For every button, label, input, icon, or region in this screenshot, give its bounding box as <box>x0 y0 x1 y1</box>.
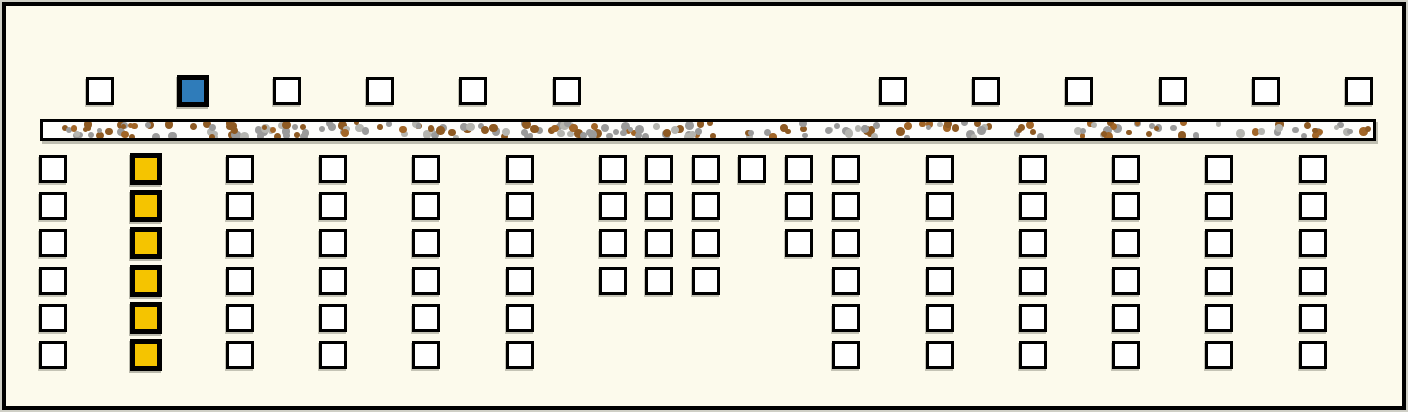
selected-yellow-square[interactable] <box>130 190 162 222</box>
gravel-dot <box>524 133 530 139</box>
gravel-dot <box>802 133 808 139</box>
gravel-dot <box>748 130 754 136</box>
grid-square[interactable] <box>692 267 720 295</box>
gravel-dot <box>977 126 986 135</box>
gravel-dot <box>1292 127 1298 133</box>
grid-square[interactable] <box>1205 192 1233 220</box>
gravel-dot <box>1180 119 1187 126</box>
selected-yellow-square[interactable] <box>130 339 162 371</box>
gravel-dot <box>1146 131 1152 137</box>
gravel-dot <box>620 130 626 136</box>
gravel-dot <box>580 132 587 139</box>
gravel-dot <box>1301 133 1307 139</box>
grid-square[interactable] <box>1299 304 1327 332</box>
grid-square[interactable] <box>1299 155 1327 183</box>
gravel-dot <box>1334 125 1339 130</box>
gravel-dot <box>1347 129 1352 134</box>
gravel-dot <box>292 124 298 130</box>
gravel-dot <box>466 123 475 132</box>
gravel-dot <box>919 121 926 128</box>
grid-square[interactable] <box>226 267 254 295</box>
gravel-dot <box>489 124 497 132</box>
gravel-dot <box>209 124 216 131</box>
grid-square[interactable] <box>1205 341 1233 369</box>
gravel-dot <box>961 119 968 126</box>
gravel-dot <box>105 128 113 136</box>
grid-square[interactable] <box>39 229 67 257</box>
grid-square[interactable] <box>1019 304 1047 332</box>
grid-square[interactable] <box>226 341 254 369</box>
gravel-dot <box>1365 126 1371 132</box>
gravel-dot <box>294 132 300 138</box>
grid-square[interactable] <box>412 341 440 369</box>
gravel-dot <box>1236 129 1244 137</box>
gravel-dot <box>799 120 806 127</box>
grid-square[interactable] <box>599 229 627 257</box>
grid-square[interactable] <box>506 267 534 295</box>
top-row-square[interactable] <box>1159 77 1187 105</box>
gravel-dot <box>873 122 880 129</box>
grid-square[interactable] <box>1205 155 1233 183</box>
gravel-dot <box>642 133 650 141</box>
top-row-square[interactable] <box>1065 77 1093 105</box>
gravel-dot <box>416 123 422 129</box>
grid-square[interactable] <box>1112 192 1140 220</box>
gravel-dot <box>952 124 959 131</box>
gravel-dot <box>362 127 370 135</box>
gravel-dot <box>121 131 129 139</box>
gravel-dot <box>710 133 716 139</box>
grid-square[interactable] <box>645 267 673 295</box>
gravel-dot <box>274 133 281 140</box>
gravel-dot <box>861 125 868 132</box>
grid-square[interactable] <box>926 192 954 220</box>
gravel-dot <box>1026 121 1034 129</box>
gravel-road-bar <box>40 119 1376 141</box>
grid-square[interactable] <box>319 267 347 295</box>
grid-square[interactable] <box>1019 267 1047 295</box>
gravel-dot <box>1037 133 1044 140</box>
gravel-dot <box>88 132 94 138</box>
gravel-dot <box>377 124 383 130</box>
grid-square[interactable] <box>226 229 254 257</box>
selected-yellow-square[interactable] <box>130 153 162 185</box>
grid-square[interactable] <box>226 192 254 220</box>
grid-square[interactable] <box>1112 267 1140 295</box>
grid-square[interactable] <box>1019 341 1047 369</box>
grid-square[interactable] <box>832 267 860 295</box>
grid-square[interactable] <box>1299 267 1327 295</box>
gravel-dot <box>302 129 310 137</box>
grid-square[interactable] <box>1112 341 1140 369</box>
gravel-dot <box>845 129 854 138</box>
selected-yellow-square[interactable] <box>130 227 162 259</box>
grid-square[interactable] <box>39 267 67 295</box>
grid-square[interactable] <box>226 155 254 183</box>
top-row-square[interactable] <box>459 77 487 105</box>
gravel-dot <box>601 124 609 132</box>
gravel-dot <box>1258 128 1264 134</box>
gravel-dot <box>653 123 660 130</box>
gravel-dot <box>84 120 93 129</box>
grid-square[interactable] <box>1019 229 1047 257</box>
gravel-dot <box>671 126 679 134</box>
grid-square[interactable] <box>1019 155 1047 183</box>
gravel-dot <box>971 134 977 140</box>
gravel-dot <box>663 129 671 137</box>
gravel-dot <box>780 124 788 132</box>
gravel-dot <box>855 125 862 132</box>
grid-square[interactable] <box>832 304 860 332</box>
grid-square[interactable] <box>832 341 860 369</box>
gravel-dot <box>695 128 701 134</box>
top-row-square[interactable] <box>553 77 581 105</box>
gravel-dot <box>209 134 215 140</box>
grid-square[interactable] <box>319 192 347 220</box>
grid-square[interactable] <box>1112 304 1140 332</box>
gravel-dot <box>319 126 325 132</box>
grid-square[interactable] <box>832 229 860 257</box>
grid-square[interactable] <box>412 304 440 332</box>
gravel-dot <box>1304 122 1311 129</box>
gravel-dot <box>152 133 160 141</box>
gravel-dot <box>1178 131 1187 140</box>
grid-square[interactable] <box>1205 229 1233 257</box>
grid-square[interactable] <box>412 155 440 183</box>
gravel-dot <box>129 134 135 140</box>
gravel-dot <box>530 125 539 134</box>
gravel-dot <box>121 124 126 129</box>
gravel-dot <box>834 123 840 129</box>
gravel-dot <box>270 127 276 133</box>
gravel-dot <box>1080 133 1086 139</box>
grid-square[interactable] <box>506 229 534 257</box>
gravel-dot <box>1170 125 1177 132</box>
grid-square[interactable] <box>832 155 860 183</box>
grid-square[interactable] <box>39 155 67 183</box>
gravel-dot <box>1216 121 1222 127</box>
gravel-dot <box>588 130 597 139</box>
grid-square[interactable] <box>1299 229 1327 257</box>
grid-square[interactable] <box>412 192 440 220</box>
grid-square[interactable] <box>832 192 860 220</box>
top-row-square[interactable] <box>366 77 394 105</box>
grid-square[interactable] <box>319 229 347 257</box>
gravel-dot <box>904 135 909 140</box>
gravel-dot <box>1080 128 1086 134</box>
gravel-dot <box>1107 120 1113 126</box>
gravel-dot <box>1312 128 1318 134</box>
gravel-dot <box>769 133 776 140</box>
gravel-dot <box>190 123 197 130</box>
grid-square[interactable] <box>738 155 766 183</box>
grid-square[interactable] <box>1299 192 1327 220</box>
grid-square[interactable] <box>926 304 954 332</box>
gravel-dot <box>453 135 459 141</box>
grid-square[interactable] <box>926 155 954 183</box>
grid-square[interactable] <box>692 229 720 257</box>
gravel-dot <box>481 126 489 134</box>
grid-square[interactable] <box>926 267 954 295</box>
gravel-dot <box>1135 120 1140 125</box>
selected-yellow-square[interactable] <box>130 265 162 297</box>
plot-map-canvas <box>0 0 1408 412</box>
grid-square[interactable] <box>599 267 627 295</box>
gravel-dot <box>74 131 79 136</box>
gravel-dot <box>1018 124 1025 131</box>
grid-square[interactable] <box>926 229 954 257</box>
gravel-dot <box>697 120 705 128</box>
gravel-dot <box>145 122 151 128</box>
gravel-dot <box>428 125 434 131</box>
top-row-square[interactable] <box>1345 77 1373 105</box>
grid-square[interactable] <box>692 155 720 183</box>
gravel-dot <box>564 120 571 127</box>
grid-square[interactable] <box>39 192 67 220</box>
grid-square[interactable] <box>1019 192 1047 220</box>
gravel-dot <box>904 122 912 130</box>
gravel-dot <box>257 132 264 139</box>
gravel-dot <box>707 120 713 126</box>
gravel-dot <box>168 132 176 140</box>
grid-square[interactable] <box>785 192 813 220</box>
grid-square[interactable] <box>226 304 254 332</box>
gravel-dot <box>1091 122 1097 128</box>
gravel-dot <box>165 120 173 128</box>
grid-square[interactable] <box>599 192 627 220</box>
top-row-square[interactable] <box>86 77 114 105</box>
grid-square[interactable] <box>1205 267 1233 295</box>
gravel-dot <box>240 132 249 141</box>
gravel-dot <box>937 122 942 127</box>
grid-square[interactable] <box>692 192 720 220</box>
grid-square[interactable] <box>506 304 534 332</box>
gravel-dot <box>1030 129 1036 135</box>
gravel-dot <box>606 133 613 140</box>
gravel-dot <box>341 129 349 137</box>
grid-square[interactable] <box>506 341 534 369</box>
grid-square[interactable] <box>1299 341 1327 369</box>
gravel-dot <box>1312 132 1319 139</box>
grid-square[interactable] <box>1112 155 1140 183</box>
gravel-dot <box>825 127 832 134</box>
top-row-square[interactable] <box>972 77 1000 105</box>
selected-blue-square[interactable] <box>177 75 209 107</box>
gravel-dot <box>282 121 291 130</box>
grid-square[interactable] <box>39 304 67 332</box>
grid-square[interactable] <box>39 341 67 369</box>
gravel-dot <box>502 128 510 136</box>
gravel-dot <box>436 126 444 134</box>
grid-square[interactable] <box>785 155 813 183</box>
gravel-dot <box>354 120 359 125</box>
gravel-dot <box>613 129 619 135</box>
gravel-dot <box>635 125 644 134</box>
grid-square[interactable] <box>926 341 954 369</box>
gravel-dot <box>399 126 406 133</box>
gravel-dot <box>1275 124 1283 132</box>
grid-square[interactable] <box>412 229 440 257</box>
gravel-dot <box>689 131 695 137</box>
grid-square[interactable] <box>506 192 534 220</box>
selected-yellow-square[interactable] <box>130 302 162 334</box>
grid-square[interactable] <box>319 341 347 369</box>
grid-square[interactable] <box>319 304 347 332</box>
grid-square[interactable] <box>506 155 534 183</box>
gravel-dot <box>567 131 573 137</box>
grid-square[interactable] <box>645 229 673 257</box>
gravel-dot <box>557 130 564 137</box>
gravel-dot <box>386 121 392 127</box>
top-row-square[interactable] <box>879 77 907 105</box>
grid-square[interactable] <box>412 267 440 295</box>
gravel-dot <box>1126 130 1132 136</box>
gravel-dot <box>926 125 931 130</box>
grid-square[interactable] <box>1112 229 1140 257</box>
grid-square[interactable] <box>785 229 813 257</box>
gravel-dot <box>871 133 878 140</box>
gravel-dot <box>685 121 694 130</box>
grid-square[interactable] <box>599 155 627 183</box>
gravel-dot <box>1193 132 1199 138</box>
top-row-square[interactable] <box>273 77 301 105</box>
grid-square[interactable] <box>645 192 673 220</box>
grid-square[interactable] <box>1205 304 1233 332</box>
grid-square[interactable] <box>319 155 347 183</box>
top-row-square[interactable] <box>1252 77 1280 105</box>
grid-square[interactable] <box>645 155 673 183</box>
